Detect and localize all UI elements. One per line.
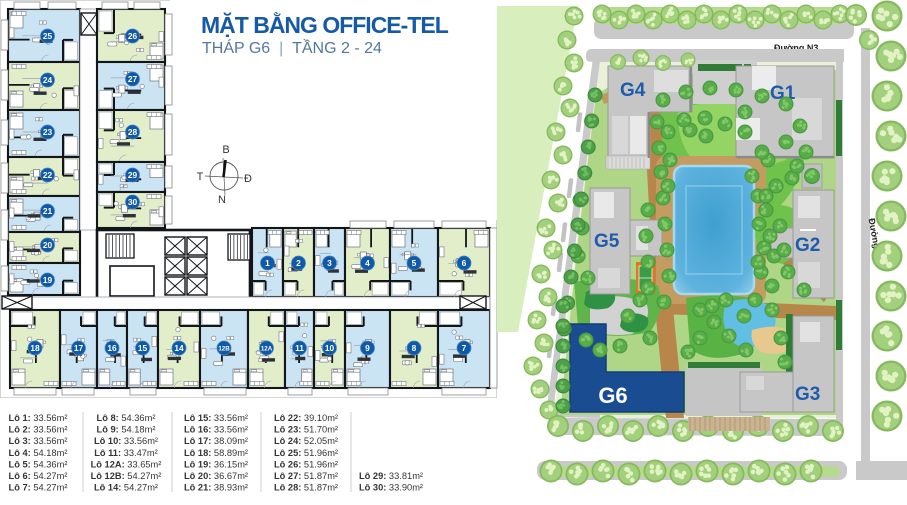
svg-text:15: 15 (138, 343, 148, 353)
svg-text:30: 30 (128, 197, 138, 207)
svg-text:MẶT BẰNG OFFICE-TEL: MẶT BẰNG OFFICE-TEL (201, 11, 449, 38)
svg-text:Lô 2: 33.56m²: Lô 2: 33.56m² (9, 425, 68, 435)
svg-text:Lô 12A: 33.65m²: Lô 12A: 33.65m² (91, 459, 162, 469)
svg-text:Lô 20: 36.67m²: Lô 20: 36.67m² (184, 471, 248, 481)
svg-text:7: 7 (462, 343, 467, 353)
svg-text:11: 11 (295, 343, 304, 353)
svg-text:22: 22 (43, 170, 53, 180)
svg-text:G5: G5 (594, 231, 620, 252)
svg-text:9: 9 (365, 343, 370, 353)
svg-text:1: 1 (265, 258, 270, 268)
svg-text:Lô 30: 33.90m²: Lô 30: 33.90m² (359, 483, 423, 493)
svg-text:Lô 11: 33.47m²: Lô 11: 33.47m² (94, 448, 158, 458)
svg-text:Lô 8: 54.36m²: Lô 8: 54.36m² (97, 413, 156, 423)
svg-text:Lô 23: 51.70m²: Lô 23: 51.70m² (274, 425, 338, 435)
svg-text:Lô 6: 54.27m²: Lô 6: 54.27m² (9, 471, 68, 481)
svg-text:18: 18 (30, 343, 40, 353)
svg-text:Lô 15: 33.56m²: Lô 15: 33.56m² (184, 413, 248, 423)
svg-text:29: 29 (128, 170, 138, 180)
svg-text:Lô 1: 33.56m²: Lô 1: 33.56m² (9, 413, 68, 423)
svg-text:Lô 21: 38.93m²: Lô 21: 38.93m² (184, 483, 248, 493)
svg-text:17: 17 (74, 343, 84, 353)
svg-text:B: B (222, 144, 229, 156)
svg-text:24: 24 (43, 75, 53, 85)
svg-text:3: 3 (327, 258, 332, 268)
svg-text:Lô 9: 54.18m²: Lô 9: 54.18m² (97, 425, 156, 435)
svg-text:Lô 4: 54.18m²: Lô 4: 54.18m² (9, 448, 68, 458)
svg-text:26: 26 (128, 31, 138, 41)
svg-text:5: 5 (412, 258, 417, 268)
svg-text:Lô 12B: 54.27m²: Lô 12B: 54.27m² (91, 471, 162, 481)
svg-text:Lô 24: 52.05m²: Lô 24: 52.05m² (274, 436, 338, 446)
svg-text:25: 25 (43, 31, 53, 41)
svg-text:Lô 18: 58.89m²: Lô 18: 58.89m² (184, 448, 248, 458)
svg-text:Đ: Đ (244, 173, 252, 185)
svg-text:12B: 12B (218, 345, 230, 352)
svg-text:Lô 7: 54.27m²: Lô 7: 54.27m² (9, 483, 68, 493)
svg-text:Lô 16: 33.56m²: Lô 16: 33.56m² (184, 425, 248, 435)
svg-text:G2: G2 (795, 235, 820, 256)
svg-text:G6: G6 (598, 383, 627, 408)
svg-text:Lô 14: 54.27m²: Lô 14: 54.27m² (94, 483, 158, 493)
svg-text:Lô 5: 54.36m²: Lô 5: 54.36m² (9, 459, 68, 469)
svg-text:Lô 26: 51.96m²: Lô 26: 51.96m² (274, 459, 338, 469)
svg-text:G3: G3 (795, 384, 820, 405)
svg-text:19: 19 (43, 275, 53, 285)
svg-text:4: 4 (365, 258, 370, 268)
svg-text:T: T (197, 171, 204, 183)
svg-text:21: 21 (43, 206, 53, 216)
svg-text:Lô 10: 33.56m²: Lô 10: 33.56m² (94, 436, 158, 446)
svg-text:Lô 22: 39.10m²: Lô 22: 39.10m² (274, 413, 338, 423)
svg-text:Lô 27: 51.87m²: Lô 27: 51.87m² (274, 471, 338, 481)
svg-text:27: 27 (128, 74, 138, 84)
svg-text:Lô 3: 33.56m²: Lô 3: 33.56m² (9, 436, 68, 446)
svg-text:14: 14 (174, 343, 184, 353)
svg-text:12A: 12A (261, 345, 273, 352)
svg-text:Lô 29: 33.81m²: Lô 29: 33.81m² (359, 471, 423, 481)
svg-text:10: 10 (325, 343, 335, 353)
svg-text:20: 20 (43, 240, 53, 250)
svg-text:16: 16 (107, 343, 117, 353)
svg-text:2: 2 (296, 258, 301, 268)
svg-text:6: 6 (462, 258, 467, 268)
svg-text:Lô 17: 38.09m²: Lô 17: 38.09m² (184, 436, 248, 446)
svg-text:8: 8 (412, 343, 417, 353)
svg-text:28: 28 (128, 127, 138, 137)
svg-text:Lô 28: 51.87m²: Lô 28: 51.87m² (274, 483, 338, 493)
svg-text:Lô 19: 36.15m²: Lô 19: 36.15m² (184, 459, 248, 469)
svg-text:23: 23 (43, 127, 53, 137)
svg-text:G4: G4 (620, 80, 646, 101)
svg-text:Lô 25: 51.96m²: Lô 25: 51.96m² (274, 448, 338, 458)
svg-text:N: N (218, 194, 226, 206)
svg-text:THÁP G6 | TẦNG 2 - 24: THÁP G6 | TẦNG 2 - 24 (202, 38, 382, 57)
